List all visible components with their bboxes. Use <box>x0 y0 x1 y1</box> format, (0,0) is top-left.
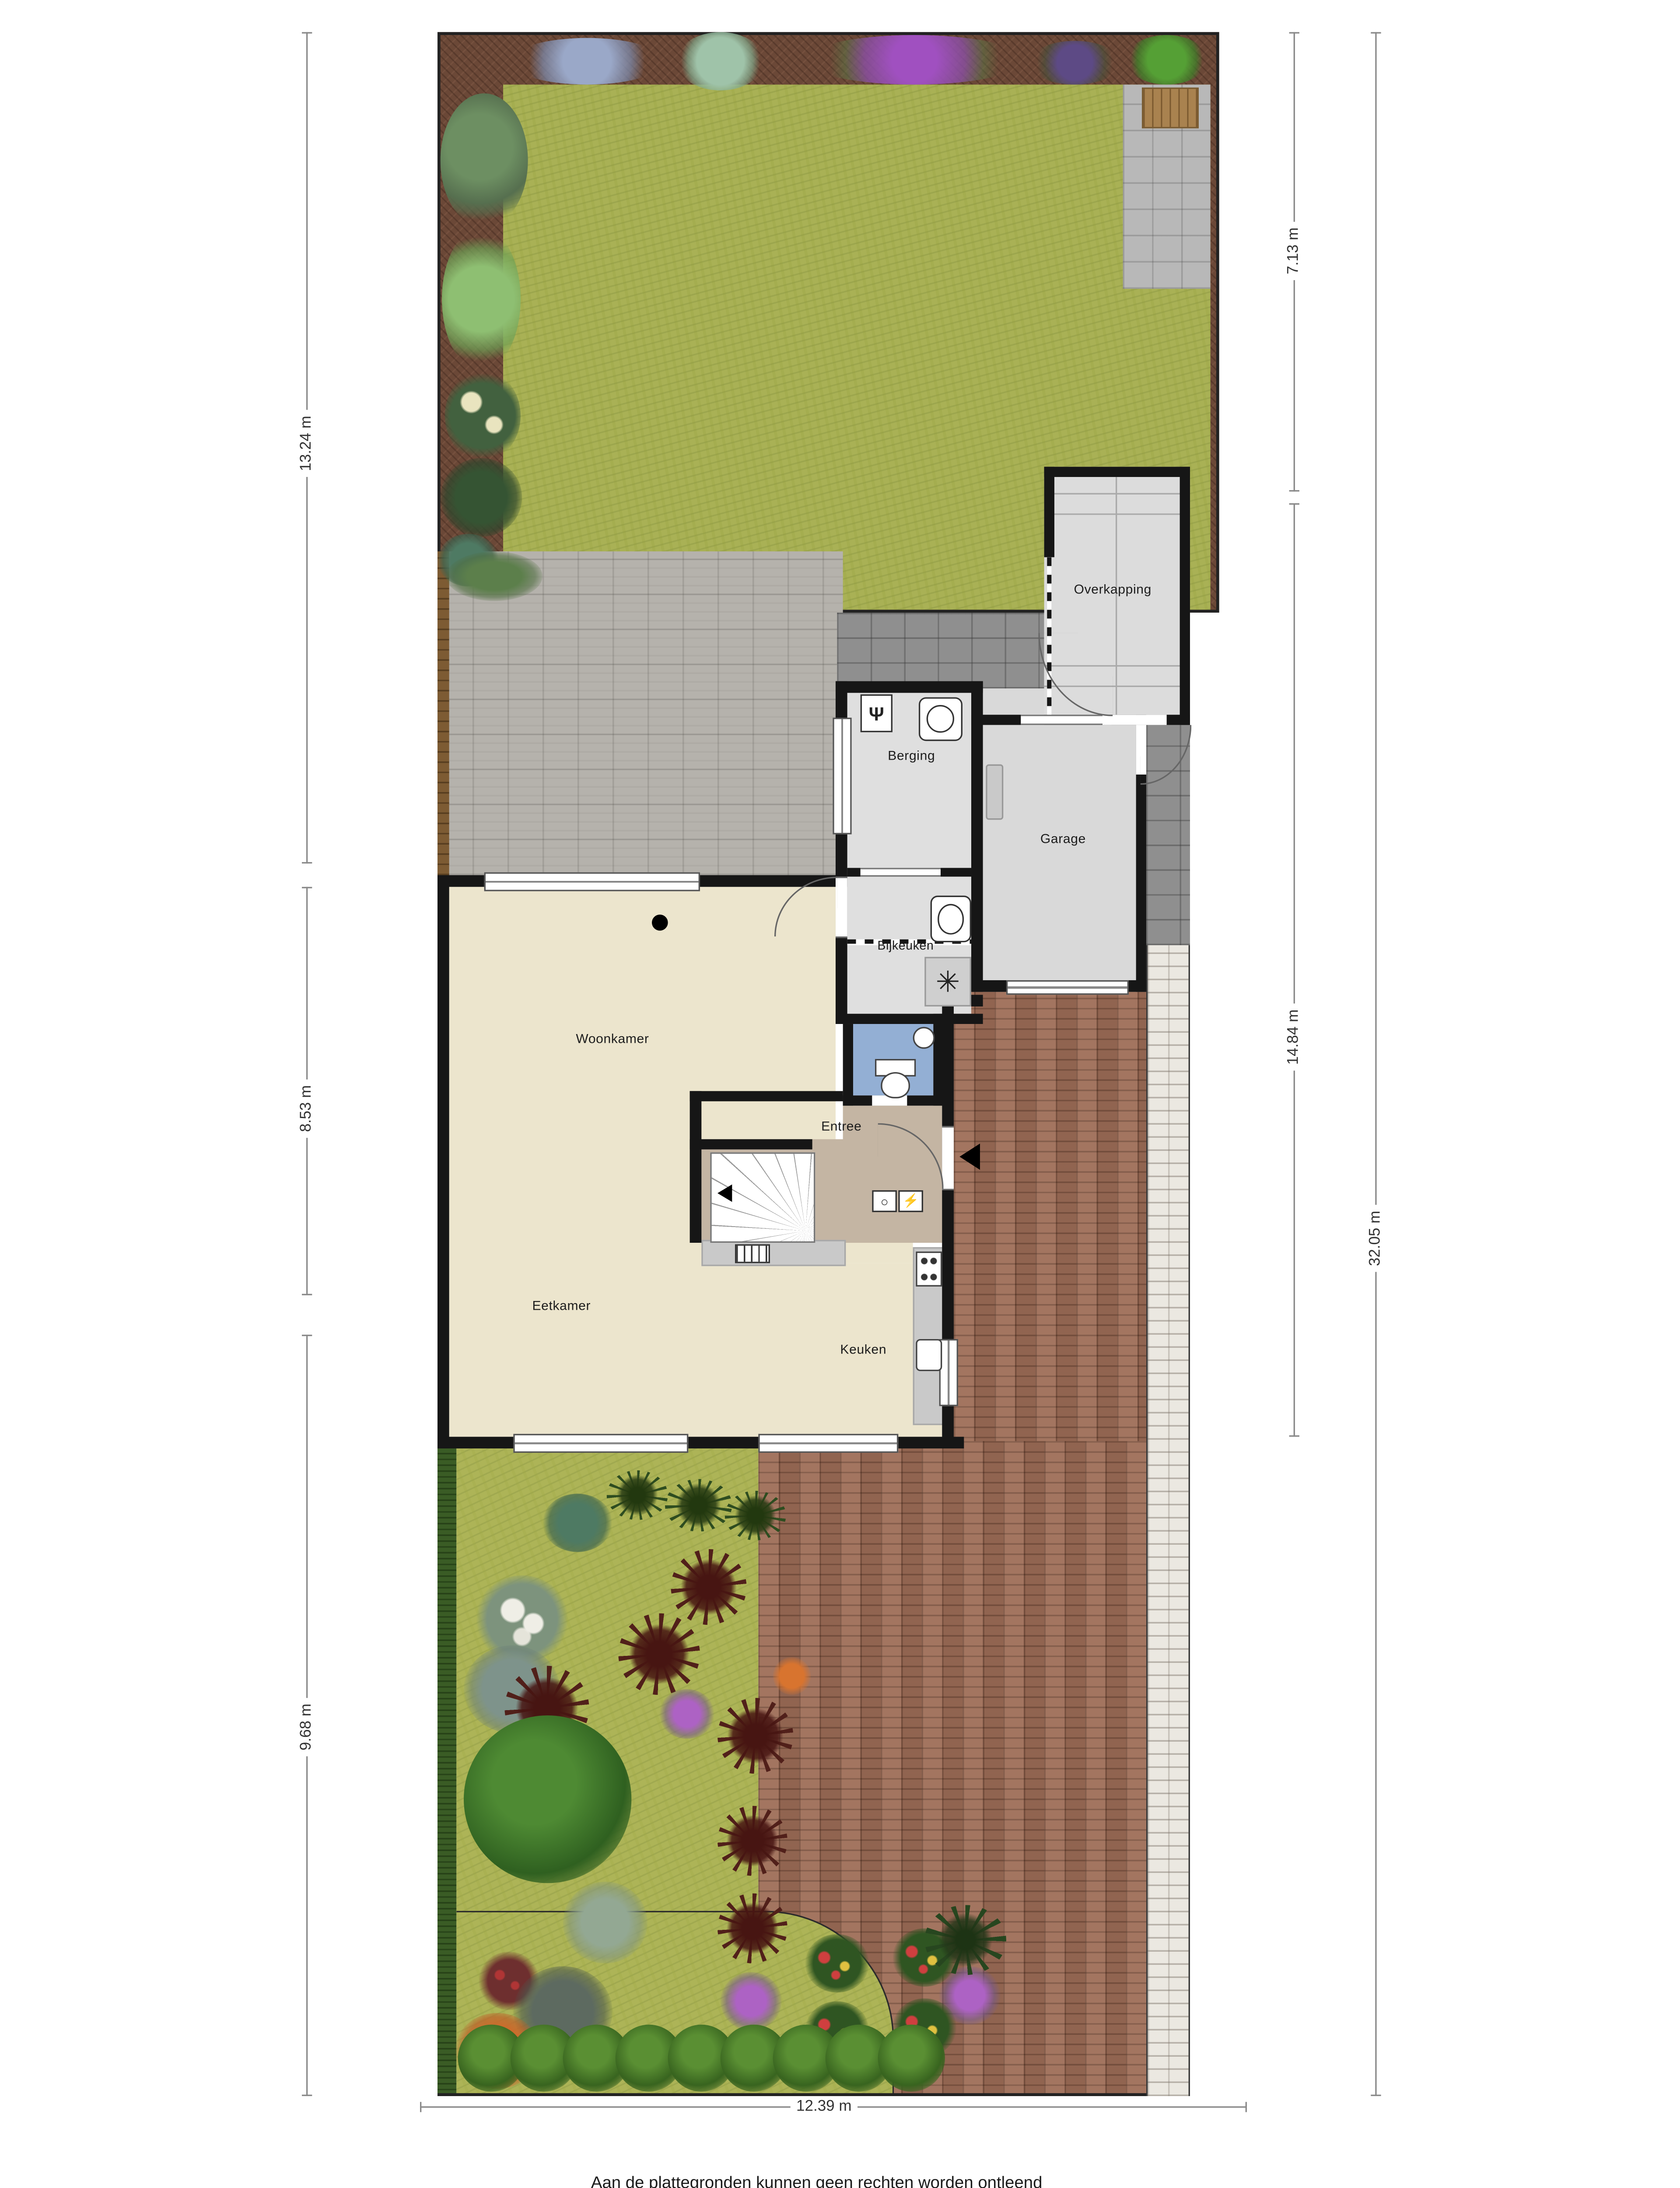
dim-right-total-label: 32.05 m <box>1365 1205 1386 1272</box>
dim-left-bottom-label: 9.68 m <box>296 1698 317 1757</box>
plant-deepg <box>441 458 522 537</box>
window-diningroom-south <box>513 1434 688 1453</box>
plant-vine <box>446 551 542 601</box>
garage-door <box>1006 980 1129 995</box>
plant-spikyr <box>618 1613 700 1695</box>
plant-purpclump <box>659 1689 715 1739</box>
dim-right-middle-label: 14.84 m <box>1283 1003 1304 1070</box>
toilet-sink <box>913 1027 935 1049</box>
footer-disclaimer: Aan de plattegronden kunnen geen rechten… <box>87 2175 1546 2188</box>
plant-spikyr <box>671 1549 746 1625</box>
window-kitchen-south <box>758 1434 898 1453</box>
plant-bright <box>1126 35 1207 84</box>
plant-bigbush <box>464 1715 631 1883</box>
label-woonkamer: Woonkamer <box>576 1031 649 1046</box>
dim-right-top-label: 7.13 m <box>1283 221 1304 280</box>
window-livingroom-north <box>484 872 700 891</box>
label-overkapping: Overkapping <box>1074 582 1151 596</box>
plant-thistle <box>563 1882 647 1964</box>
label-keuken: Keuken <box>840 1342 886 1357</box>
floorplan-scene: Ψ ✳ ○ ⚡ Overkapping Berging Garage Bijke… <box>0 0 1680 2188</box>
floor-kitchen2 <box>843 1243 913 1263</box>
label-bijkeuken: Bijkeuken <box>878 938 934 952</box>
water-meter-icon: ○ <box>872 1190 897 1212</box>
staircase-arrow <box>717 1185 732 1202</box>
toilet-bowl <box>881 1072 910 1098</box>
plant-purple <box>805 35 1024 84</box>
plant-sage <box>677 32 764 90</box>
plant-creamfl <box>445 371 521 461</box>
dim-right-total <box>1375 32 1376 2096</box>
dim-left-top-label: 13.24 m <box>296 410 317 477</box>
livingroom-dot <box>652 915 668 931</box>
plant-bushpg <box>441 93 528 228</box>
plant-palm <box>924 1905 1006 1975</box>
label-garage: Garage <box>1040 831 1086 846</box>
plant-spikyg <box>725 1491 786 1540</box>
plant-orange2 <box>773 1657 811 1695</box>
opening-overkapping-south <box>1102 715 1167 725</box>
label-berging: Berging <box>888 748 935 763</box>
washer-icon-berging <box>919 697 962 741</box>
plant-spikyg <box>665 1479 732 1532</box>
plant-hedge <box>878 2025 945 2092</box>
fan-icon-bijkeuken: ✳ <box>924 957 971 1006</box>
dim-left-middle-label: 8.53 m <box>296 1079 317 1138</box>
stove <box>916 1252 942 1287</box>
plant-spikyr <box>717 1698 793 1774</box>
opening-garage-north <box>1021 715 1111 725</box>
corridor-door-gap <box>836 877 847 938</box>
coat-hook-icon: Ψ <box>861 694 892 733</box>
electric-meter-icon: ⚡ <box>898 1190 923 1212</box>
kitchen-sink <box>916 1339 942 1371</box>
dim-right-middle <box>1294 503 1295 1437</box>
garage-cabinet <box>986 764 1003 820</box>
label-eetkamer: Eetkamer <box>532 1298 591 1313</box>
opening-berging-corridor <box>861 868 941 877</box>
plant-spikyr <box>717 1806 787 1876</box>
plant-violet <box>1029 41 1120 84</box>
window-berging-west <box>833 718 851 835</box>
plant-lav <box>511 38 664 85</box>
floor-kitchen <box>701 1263 942 1437</box>
plant-purpclump <box>721 1972 782 2030</box>
label-entree: Entree <box>821 1119 861 1133</box>
plant-lightg <box>442 228 521 371</box>
dim-bottom-label: 12.39 m <box>791 2097 857 2115</box>
plant-spikyr <box>717 1893 787 1964</box>
plant-flbush <box>805 1934 869 1992</box>
washer-icon-bijkeuken <box>931 896 971 943</box>
plant-teal2 <box>542 1494 612 1552</box>
entrance-arrow <box>959 1143 980 1170</box>
plant-spikyg <box>607 1470 668 1520</box>
kitchen-counter-hall <box>701 1240 846 1266</box>
front-door-gap <box>942 1126 954 1190</box>
radiator <box>735 1244 770 1263</box>
